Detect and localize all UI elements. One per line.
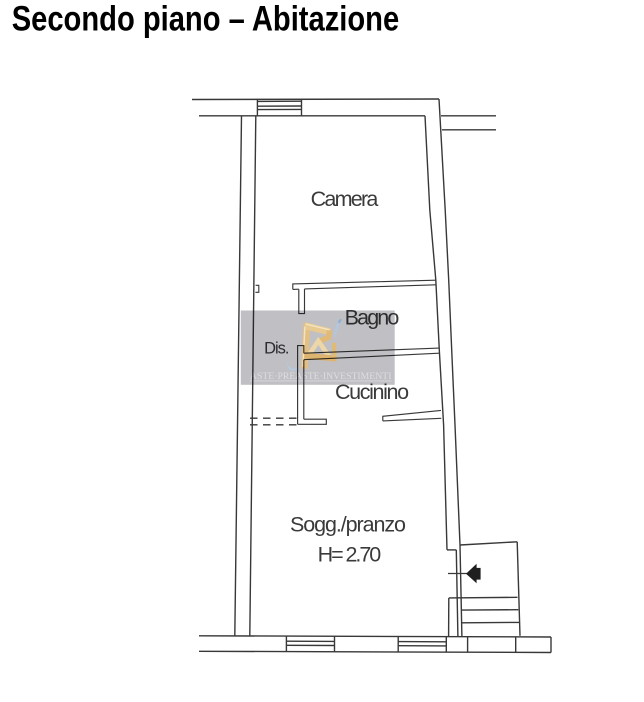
- svg-text:ASTE·PREASTE·INVESTIMENTI: ASTE·PREASTE·INVESTIMENTI: [250, 371, 392, 381]
